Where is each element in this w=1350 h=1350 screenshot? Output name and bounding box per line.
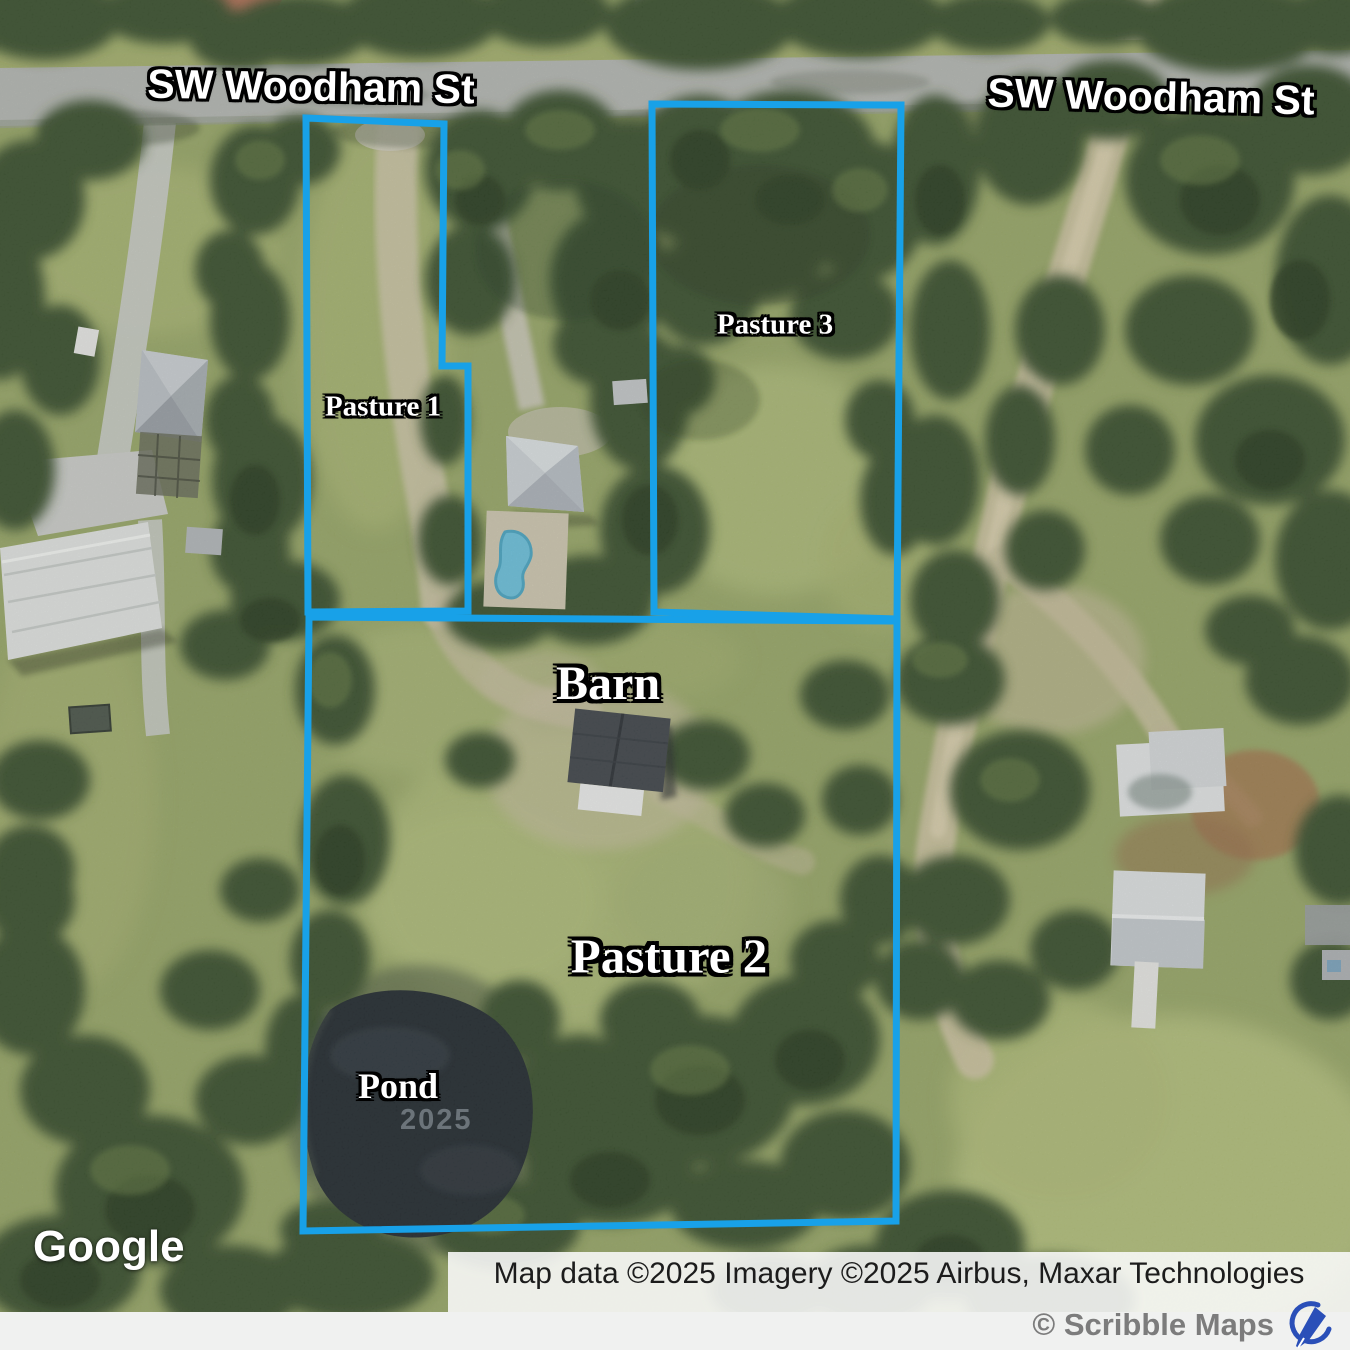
barn-label: Barn xyxy=(556,660,660,708)
texture-light xyxy=(0,0,1350,1312)
satellite-imagery xyxy=(0,0,1350,1312)
scribble-maps-label[interactable]: © Scribble Maps xyxy=(1032,1307,1274,1343)
attribution-text: Map data ©2025 Imagery ©2025 Airbus, Max… xyxy=(494,1257,1305,1291)
pasture-3-label: Pasture 3 xyxy=(717,311,833,340)
pasture-1-label: Pasture 1 xyxy=(325,393,441,422)
street-label-left: SW Woodham St xyxy=(147,64,475,111)
imagery-watermark: 2025 xyxy=(400,1104,473,1137)
pond-label: Pond xyxy=(358,1068,438,1104)
scribble-maps-credit[interactable]: © Scribble Maps xyxy=(1032,1297,1334,1350)
scribble-maps-pen-icon[interactable] xyxy=(1282,1299,1334,1350)
street-label-right: SW Woodham St xyxy=(987,73,1315,122)
pasture-2-label: Pasture 2 xyxy=(571,932,767,981)
map-canvas[interactable]: SW Woodham St SW Woodham St Pasture 1 Pa… xyxy=(0,0,1350,1350)
google-logo[interactable]: Google xyxy=(33,1222,185,1272)
